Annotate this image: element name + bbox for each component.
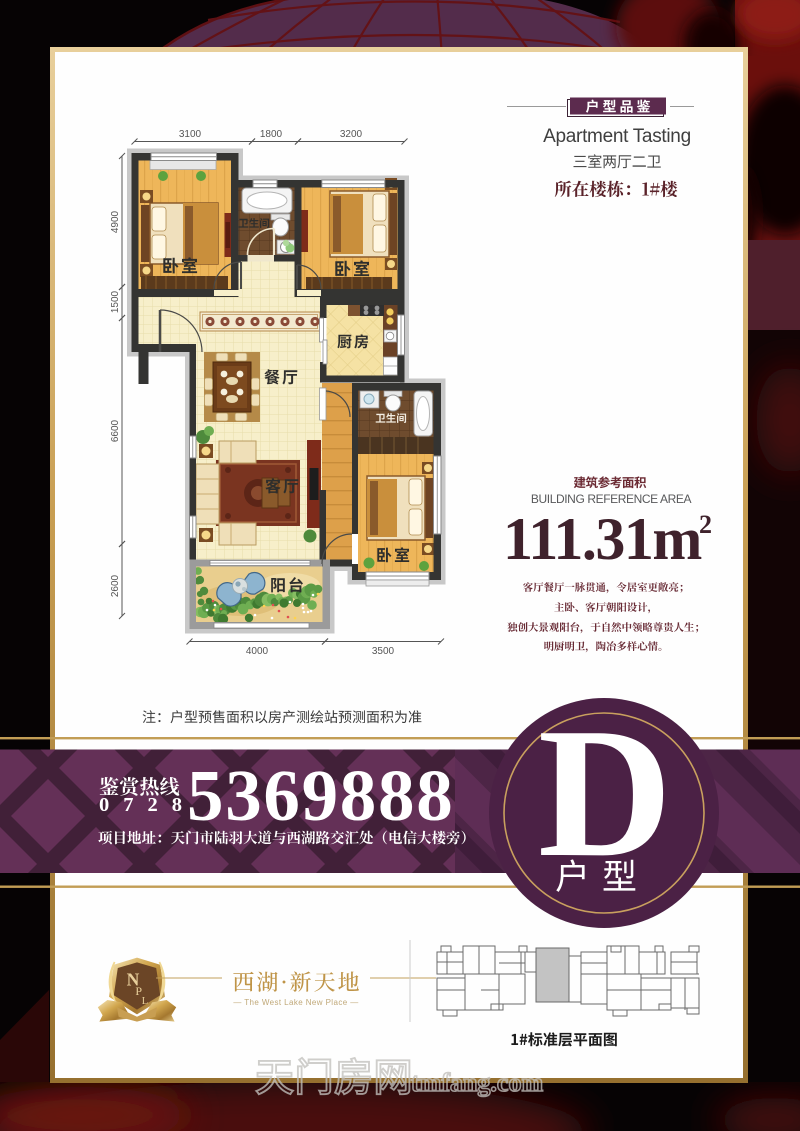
- svg-text:111.31m: 111.31m: [503, 506, 701, 572]
- svg-text:3500: 3500: [372, 646, 395, 657]
- svg-text:BUILDING REFERENCE AREA: BUILDING REFERENCE AREA: [531, 492, 692, 506]
- svg-text:L: L: [142, 996, 148, 1007]
- svg-text:3200: 3200: [340, 129, 363, 140]
- svg-text:2: 2: [699, 510, 712, 539]
- svg-text:D: D: [538, 690, 672, 896]
- svg-text:— The West Lake New Place —: — The West Lake New Place —: [233, 998, 358, 1007]
- svg-text:0728: 0728: [99, 794, 196, 816]
- svg-text:6600: 6600: [110, 419, 121, 442]
- svg-text:2600: 2600: [110, 574, 121, 597]
- svg-text:4900: 4900: [110, 210, 121, 233]
- svg-text:3100: 3100: [179, 129, 202, 140]
- svg-text:Apartment Tasting: Apartment Tasting: [543, 126, 691, 147]
- svg-text:4000: 4000: [246, 646, 269, 657]
- svg-text:1500: 1500: [110, 290, 121, 313]
- svg-text:5369888: 5369888: [187, 755, 454, 836]
- svg-text:1800: 1800: [260, 129, 283, 140]
- svg-text:tmfang.com: tmfang.com: [411, 1068, 543, 1097]
